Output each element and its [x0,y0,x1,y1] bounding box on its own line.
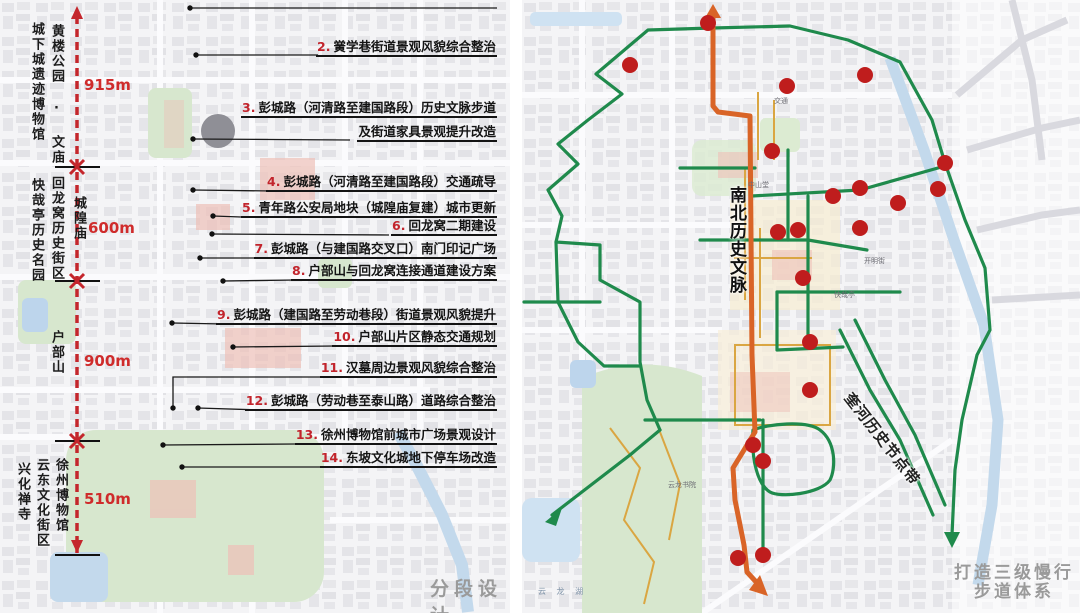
annotation-number: 6. [392,218,405,233]
side-label-yundong: 云东文化街区 [35,458,48,548]
annotation-text: 户部山片区静态交通规划 [358,329,496,344]
annotation-text: 彭城路（劳动巷至泰山路）道路综合整治 [271,393,496,408]
annotation-14: 14.东坡文化城地下停车场改造 [320,451,497,468]
annotation-text: 青年路公安局地块（城隍庙复建）城市更新 [258,200,496,215]
annotation-text: 户部山与回龙窝连接通道建设方案 [308,263,496,278]
annotation-9: 9.彭城路（建国路至劳动巷段）街道景观风貌提升 [216,308,497,325]
right-panel-caption: 打造三级慢行 步道体系 [954,564,1074,602]
annotation-text: 彭城路（河清路至建国路段）交通疏导 [283,174,496,189]
segment-design-map-panel: 城下城遗迹博物馆 黄楼公园 · 文庙 快哉亭历史名园 回龙窝历史街区 城隍庙 户… [0,0,510,613]
east-fade [952,0,1080,613]
annotation-number: 4. [267,174,280,189]
caption-line1: 打造三级慢行 [954,564,1074,583]
left-panel-caption: 分段设计 [430,574,510,613]
annotation-text: 彭城路（河清路至建国路段）历史文脉步道 [258,100,496,115]
map-label-yunlonghu: 云 龙 湖 [538,586,587,597]
trail-system-map-panel: 南北历史文脉 奎河历史节点带 交通 中山堂 开明街 快哉亭 云龙书院 云 龙 湖… [522,0,1080,613]
side-label-huilongwo: 回龙窝历史街区 [50,176,63,281]
annotation-text: 及街道家具景观提升改造 [358,124,496,139]
distance-900m: 900m [84,352,131,370]
map-label-jiaotong: 交通 [774,96,788,106]
annotation-number: 12. [246,393,268,408]
annotation-number: 2. [317,39,330,54]
side-label-chengxiacheng: 城下城遗迹博物馆 [30,22,43,142]
side-label-hubushan: 户部山 [50,330,63,375]
annotation-3-line2: 及街道家具景观提升改造 [357,125,497,142]
annotation-number: 9. [217,307,230,322]
axis-label-north-south-heritage: 南北历史文脉 [724,186,749,294]
annotation-number: 14. [321,450,343,465]
annotation-text: 彭城路（建国路至劳动巷段）街道景观风貌提升 [233,307,496,322]
annotation-number: 5. [242,200,255,215]
side-label-kuaizaiting: 快哉亭历史名园 [30,178,43,283]
annotation-text: 汉墓周边景观风貌综合整治 [346,360,496,375]
plaza-dome [201,114,235,148]
annotation-text: 徐州博物馆前城市广场景观设计 [321,427,496,442]
annotation-number: 8. [292,263,305,278]
planning-map-page: 城下城遗迹博物馆 黄楼公园 · 文庙 快哉亭历史名园 回龙窝历史街区 城隍庙 户… [0,0,1080,613]
annotation-8: 8.户部山与回龙窝连接通道建设方案 [291,264,497,281]
right-map-graphics [522,0,1080,613]
map-label-zhongshantang: 中山堂 [748,180,769,190]
distance-915m: 915m [84,76,131,94]
annotation-text: 黉学巷街道景观风貌综合整治 [333,39,496,54]
distance-600m: 600m [88,219,135,237]
map-label-kaimingjie: 开明街 [864,256,885,266]
annotation-2: 2.黉学巷街道景观风貌综合整治 [316,40,497,57]
side-label-xinghuachansi: 兴化禅寺 [16,462,29,522]
annotation-12: 12.彭城路（劳动巷至泰山路）道路综合整治 [245,394,497,411]
annotation-10: 10.户部山片区静态交通规划 [332,330,497,347]
map-label-yunlongshuyuan: 云龙书院 [668,480,696,490]
annotation-4: 4.彭城路（河清路至建国路段）交通疏导 [266,175,497,192]
annotation-number: 13. [296,427,318,442]
annotation-6: 6.回龙窝二期建设 [391,219,497,236]
side-label-museum: 徐州博物馆 [54,458,67,533]
side-label-huanglou-wenmiao: 黄楼公园 · 文庙 [50,24,63,165]
annotation-text: 彭城路（与建国路交叉口）南门印记广场 [271,241,496,256]
map-label-kuaizaiting: 快哉亭 [834,290,855,300]
annotation-3: 3.彭城路（河清路至建国路段）历史文脉步道 [241,101,497,118]
annotation-number: 7. [255,241,268,256]
caption-line2: 步道体系 [954,583,1074,602]
annotation-number: 3. [242,100,255,115]
annotation-text: 回龙窝二期建设 [408,218,496,233]
annotation-5: 5.青年路公安局地块（城隍庙复建）城市更新 [241,201,497,218]
distance-510m: 510m [84,490,131,508]
annotation-11: 11.汉墓周边景观风貌综合整治 [320,361,497,378]
annotation-number: 11. [321,360,343,375]
side-label-chenghuangmiao: 城隍庙 [72,196,85,241]
annotation-number: 10. [333,329,355,344]
annotation-13: 13.徐州博物馆前城市广场景观设计 [295,428,497,445]
annotation-text: 东坡文化城地下停车场改造 [346,450,496,465]
annotation-7: 7.彭城路（与建国路交叉口）南门印记广场 [254,242,497,259]
